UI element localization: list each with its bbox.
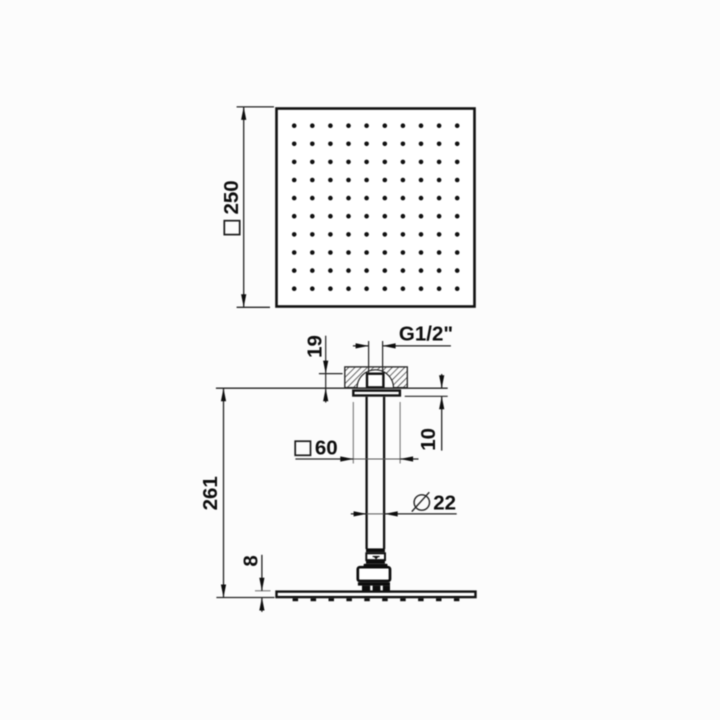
svg-text:8: 8 — [239, 555, 262, 566]
svg-text:G1/2": G1/2" — [399, 323, 453, 346]
svg-text:19: 19 — [304, 335, 327, 358]
svg-text:22: 22 — [433, 492, 456, 515]
svg-text:10: 10 — [417, 428, 440, 451]
svg-text:250: 250 — [220, 180, 243, 214]
svg-text:60: 60 — [315, 437, 338, 460]
svg-text:261: 261 — [199, 476, 222, 510]
